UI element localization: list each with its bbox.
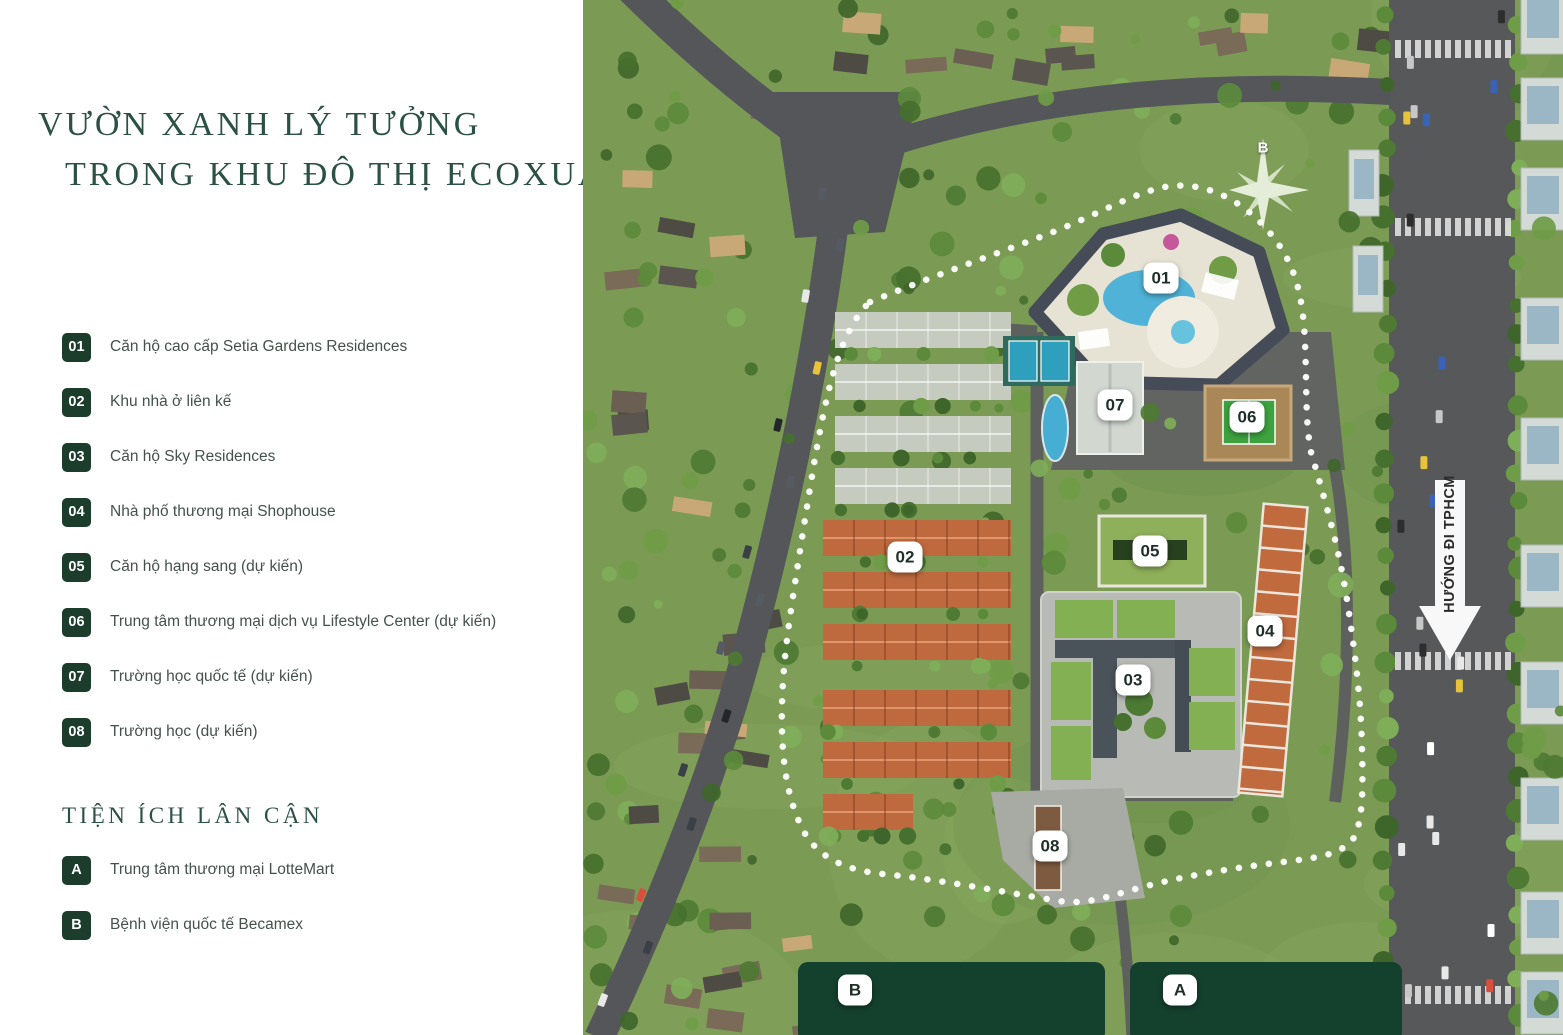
legend-badge: 03 <box>62 443 91 472</box>
map-marker-03: 03 <box>1116 665 1151 696</box>
legend-label: Căn hộ cao cấp Setia Gardens Residences <box>110 338 407 356</box>
legend-badge: 06 <box>62 608 91 637</box>
legend-badge: 01 <box>62 333 91 362</box>
parcel-02-townhouses <box>820 312 1011 845</box>
map-marker-a: A <box>1163 975 1197 1006</box>
compass-label-b: B <box>1258 140 1269 157</box>
legend-item-08: 08 Trường học (dự kiến) <box>62 718 496 746</box>
legend-badge: 04 <box>62 498 91 527</box>
pool <box>1042 395 1068 461</box>
nearby-heading: TIỆN ÍCH LÂN CẬN <box>62 803 323 829</box>
legend-badge: 02 <box>62 388 91 417</box>
legend-label: Nhà phố thương mại Shophouse <box>110 503 336 521</box>
left-panel: VƯỜN XANH LÝ TƯỞNG TRONG KHU ĐÔ THỊ ECOX… <box>0 0 583 1035</box>
legend-badge: 08 <box>62 718 91 747</box>
legend-label: Căn hộ Sky Residences <box>110 448 275 466</box>
nearby-badge: B <box>62 911 91 940</box>
map-marker-b: B <box>838 975 872 1006</box>
legend-badge: 05 <box>62 553 91 582</box>
legend-item-01: 01 Căn hộ cao cấp Setia Gardens Residenc… <box>62 333 496 361</box>
legend: 01 Căn hộ cao cấp Setia Gardens Residenc… <box>62 333 496 773</box>
direction-arrow-label: HƯỚNG ĐI TPHCM <box>1440 475 1458 613</box>
map-marker-02: 02 <box>888 542 923 573</box>
map-marker-06: 06 <box>1230 402 1265 433</box>
legend-item-05: 05 Căn hộ hạng sang (dự kiến) <box>62 553 496 581</box>
legend-item-07: 07 Trường học quốc tế (dự kiến) <box>62 663 496 691</box>
legend-item-06: 06 Trung tâm thương mại dịch vụ Lifestyl… <box>62 608 496 636</box>
flyer-page: VƯỜN XANH LÝ TƯỞNG TRONG KHU ĐÔ THỊ ECOX… <box>0 0 1563 1035</box>
legend-label: Khu nhà ở liên kế <box>110 393 231 411</box>
legend-item-03: 03 Căn hộ Sky Residences <box>62 443 496 471</box>
legend-label: Trung tâm thương mại dịch vụ Lifestyle C… <box>110 613 496 631</box>
legend-label: Căn hộ hạng sang (dự kiến) <box>110 558 303 576</box>
map-marker-07: 07 <box>1098 390 1133 421</box>
masterplan-map: HƯỚNG ĐI TPHCM 0107060205040308BAB <box>583 0 1563 1035</box>
masterplan-svg: HƯỚNG ĐI TPHCM <box>583 0 1563 1035</box>
page-title: VƯỜN XANH LÝ TƯỞNG TRONG KHU ĐÔ THỊ ECOX… <box>38 100 633 200</box>
legend-item-02: 02 Khu nhà ở liên kế <box>62 388 496 416</box>
legend-label: Trường học quốc tế (dự kiến) <box>110 668 313 686</box>
nearby-item-b: B Bệnh viện quốc tế Becamex <box>62 911 334 939</box>
map-marker-08: 08 <box>1033 831 1068 862</box>
legend-item-04: 04 Nhà phố thương mại Shophouse <box>62 498 496 526</box>
nearby-label: Bệnh viện quốc tế Becamex <box>110 916 303 934</box>
nearby-list: A Trung tâm thương mại LotteMart B Bệnh … <box>62 856 334 966</box>
nearby-item-a: A Trung tâm thương mại LotteMart <box>62 856 334 884</box>
nearby-badge: A <box>62 856 91 885</box>
map-marker-05: 05 <box>1133 536 1168 567</box>
tennis-courts <box>1003 336 1075 386</box>
page-title-line2: TRONG KHU ĐÔ THỊ ECOXUÂN <box>38 150 633 200</box>
nearby-label: Trung tâm thương mại LotteMart <box>110 861 334 879</box>
map-marker-04: 04 <box>1248 616 1283 647</box>
legend-label: Trường học (dự kiến) <box>110 723 258 741</box>
legend-badge: 07 <box>62 663 91 692</box>
map-marker-01: 01 <box>1144 263 1179 294</box>
page-title-line1: VƯỜN XANH LÝ TƯỞNG <box>38 106 481 143</box>
